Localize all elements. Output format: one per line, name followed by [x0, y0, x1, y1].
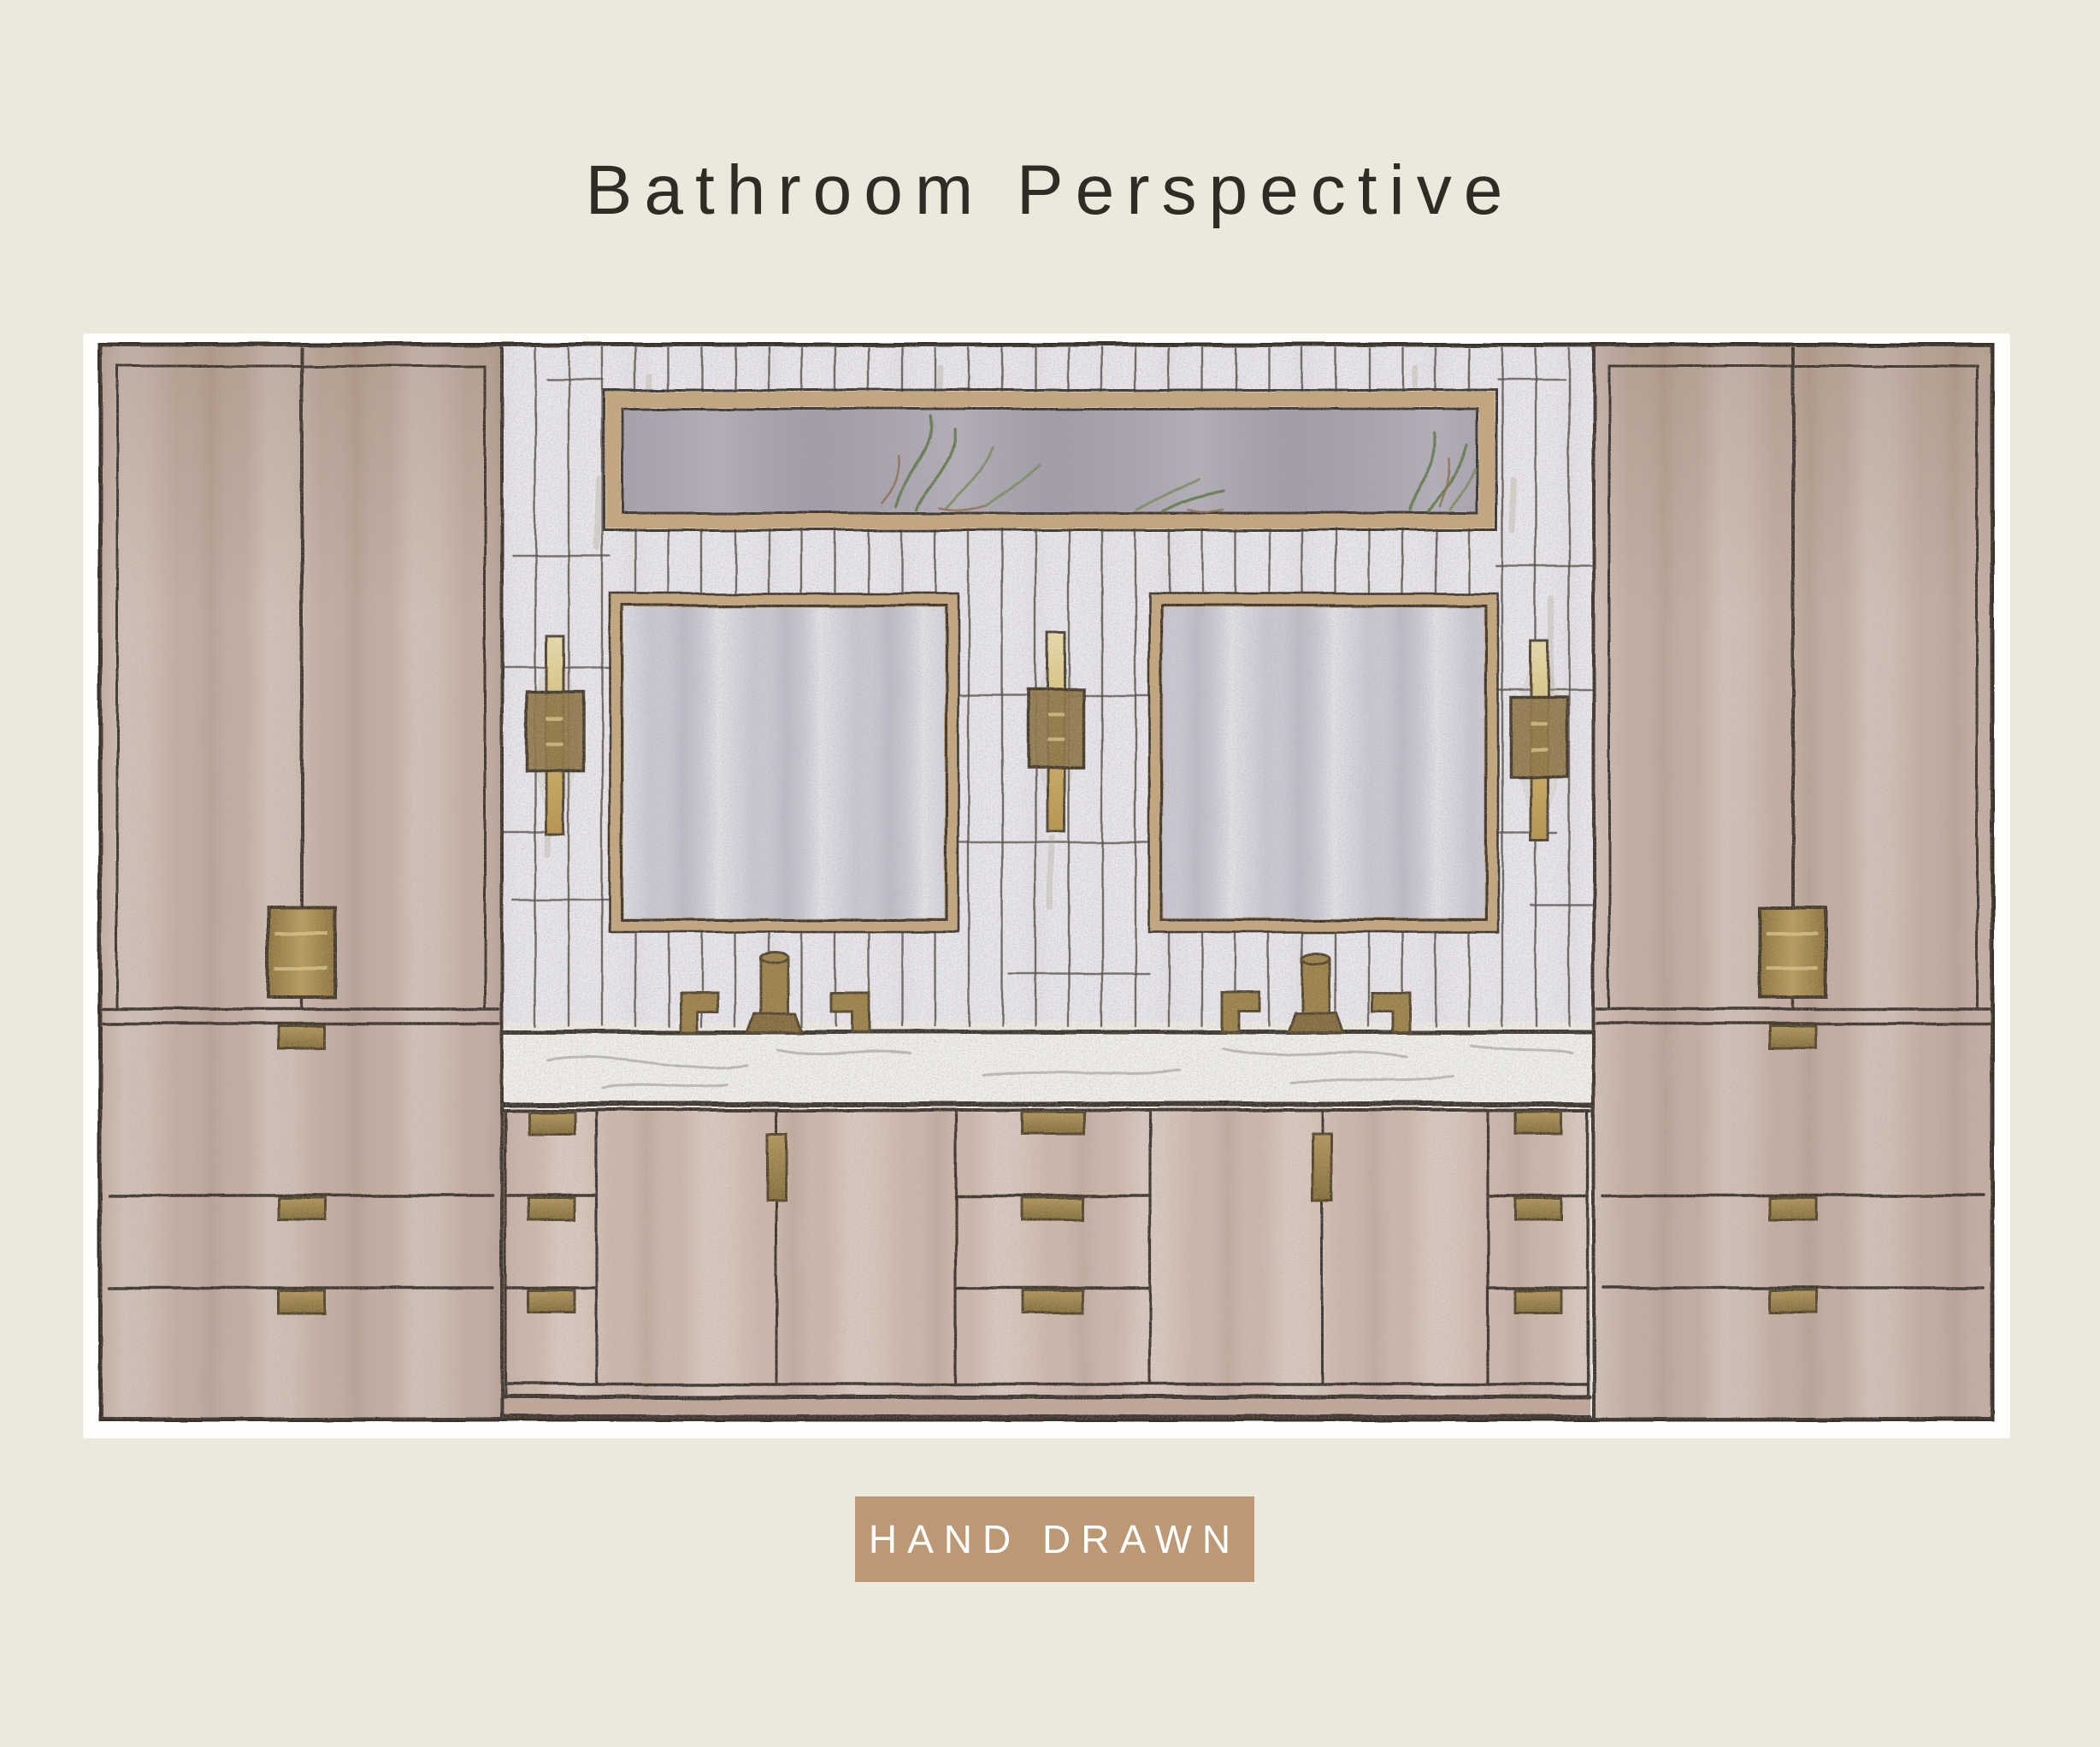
bathroom-elevation-drawing: [83, 333, 2010, 1438]
hand-drawn-badge: HAND DRAWN: [855, 1496, 1254, 1582]
page: { "title": { "text": "Bathroom Perspecti…: [0, 0, 2100, 1747]
badge-label: HAND DRAWN: [869, 1516, 1241, 1562]
drawing-mat: [83, 333, 2010, 1438]
paper-grain: [100, 345, 1992, 1419]
page-title: Bathroom Perspective: [0, 151, 2100, 231]
